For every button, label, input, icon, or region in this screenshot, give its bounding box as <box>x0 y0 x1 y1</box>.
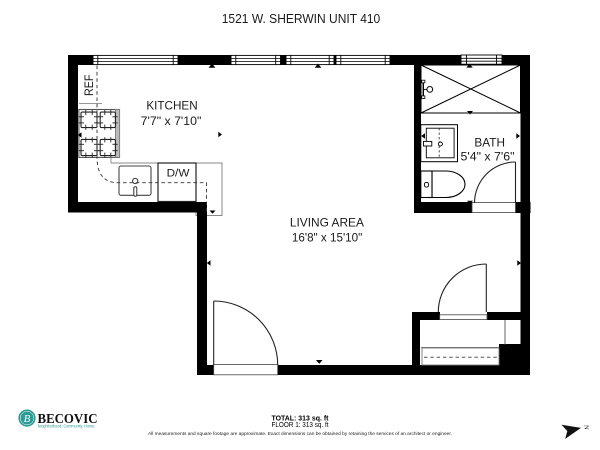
svg-text:Neighborhood. Community. Hom: Neighborhood. Community. Home. <box>38 423 96 428</box>
svg-text:16'8" x 15'10": 16'8" x 15'10" <box>292 232 362 245</box>
svg-text:REF: REF <box>82 75 96 96</box>
svg-text:5'4" x 7'6": 5'4" x 7'6" <box>461 151 515 164</box>
svg-text:FLOOR 1: 313 sq. ft: FLOOR 1: 313 sq. ft <box>272 420 329 429</box>
svg-text:1521 W. SHERWIN UNIT 410: 1521 W. SHERWIN UNIT 410 <box>222 11 381 26</box>
svg-text:N: N <box>583 425 590 430</box>
svg-text:All measurements and square fo: All measurements and square footage are … <box>148 431 452 437</box>
svg-text:KITCHEN: KITCHEN <box>146 99 197 112</box>
svg-text:B: B <box>24 413 31 425</box>
svg-text:7'7" x 7'10": 7'7" x 7'10" <box>141 115 202 128</box>
svg-text:LIVING AREA: LIVING AREA <box>290 217 364 230</box>
svg-text:D/W: D/W <box>167 168 191 180</box>
svg-text:BATH: BATH <box>474 137 505 150</box>
